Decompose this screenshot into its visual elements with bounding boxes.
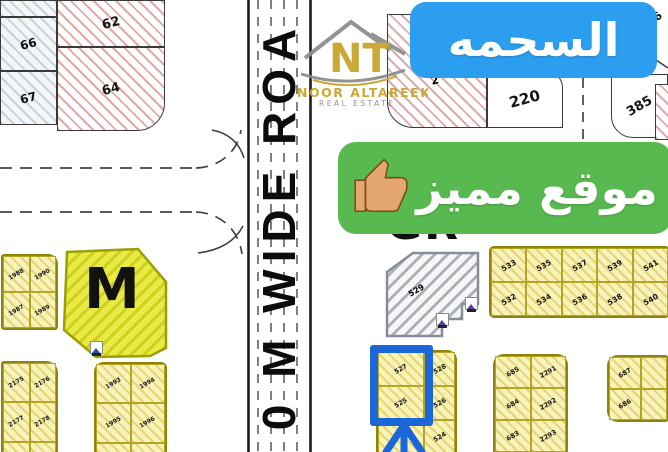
plot-row: 6852291 xyxy=(495,356,566,388)
plot-cell: 539 xyxy=(597,248,632,282)
plot-sliver xyxy=(0,0,57,17)
highlight-rectangle xyxy=(370,345,433,426)
plot-cell xyxy=(3,442,30,452)
plot-number: 541 xyxy=(641,257,659,273)
plot-row xyxy=(3,442,56,452)
plot-row: 19871989 xyxy=(3,292,56,328)
plot-number: 687 xyxy=(617,366,633,380)
plot-corner-curves xyxy=(198,130,244,253)
plot-cell: 2177 xyxy=(3,402,30,441)
plot-number: 2178 xyxy=(34,415,52,429)
plot-edge-hatched xyxy=(655,84,668,140)
plot-67: 67 xyxy=(0,71,57,125)
plot-cell: 1988 xyxy=(3,256,30,292)
plot-row: 6832293 xyxy=(495,420,566,452)
plot-row: 19931994 xyxy=(96,364,165,403)
plot-cell: 1995 xyxy=(96,403,131,442)
plot-cell: 1994 xyxy=(131,364,166,403)
plot-block-530s: 533535537539541532534536538540 xyxy=(489,246,668,318)
plot-number: 535 xyxy=(535,257,553,273)
side-road-markings xyxy=(0,130,242,254)
plot-number: 1988 xyxy=(7,267,25,281)
plot-row: 687 xyxy=(609,357,667,389)
plot-number: 1993 xyxy=(104,376,122,390)
plot-cell xyxy=(131,443,166,452)
plot-row: 532534536538540 xyxy=(491,282,668,316)
plot-cell: 2292 xyxy=(531,388,567,420)
plot-cell: 534 xyxy=(526,282,561,316)
plot-cell: 2175 xyxy=(3,363,30,402)
plot-cell xyxy=(30,442,57,452)
plot-number: 538 xyxy=(606,291,624,307)
plot-number: 1994 xyxy=(139,376,157,390)
plot-number: 2175 xyxy=(7,375,25,389)
plot-number: 2292 xyxy=(538,396,558,412)
plot-number: 685 xyxy=(505,365,521,379)
plot-block-687: 687686 xyxy=(607,355,668,422)
transformer-icon xyxy=(436,313,449,326)
plot-number: 220 xyxy=(508,86,543,111)
plot-block-1990s: 1993199419951996 xyxy=(94,362,167,452)
plot-cell: 1993 xyxy=(96,364,131,403)
plot-number: 64 xyxy=(100,79,121,98)
plot-number: 66 xyxy=(19,35,39,53)
plot-block-1980s: 1988199019871989 xyxy=(1,254,58,330)
plot-cell: 536 xyxy=(562,282,597,316)
plot-cell: 1987 xyxy=(3,292,30,328)
plot-cell xyxy=(641,389,667,421)
plot-number: 537 xyxy=(570,257,588,273)
plot-220: 220 xyxy=(487,70,563,128)
plot-cell: 687 xyxy=(609,357,641,389)
plot-number: 2177 xyxy=(7,415,25,429)
promo-banner: موقع مميز xyxy=(338,142,668,234)
plot-number: 1989 xyxy=(34,303,52,317)
plot-66: 66 xyxy=(0,17,57,71)
plot-block-2170s: 2175217621772178 xyxy=(1,361,58,452)
plot-cell: 537 xyxy=(562,248,597,282)
plot-row: 686 xyxy=(609,389,667,421)
plot-number: 1990 xyxy=(34,267,52,281)
plot-cell: 1990 xyxy=(30,256,57,292)
plot-number: 528 xyxy=(432,362,448,376)
company-name: NOOR ALTAREEK xyxy=(297,85,428,100)
plot-cell: 541 xyxy=(633,248,668,282)
plot-cell: 2176 xyxy=(30,363,57,402)
plot-cell: 533 xyxy=(491,248,526,282)
plot-row: 21772178 xyxy=(3,402,56,441)
plot-number: 1987 xyxy=(7,303,25,317)
plot-number: 385 xyxy=(624,93,655,120)
plot-number: 536 xyxy=(570,291,588,307)
plot-cell: 684 xyxy=(495,388,531,420)
plot-number: 67 xyxy=(19,89,39,107)
plot-cell: 1989 xyxy=(30,292,57,328)
plot-number: 534 xyxy=(535,291,553,307)
plot-number: 683 xyxy=(505,429,521,443)
plot-row: 19951996 xyxy=(96,403,165,442)
plot-cell: 1996 xyxy=(131,403,166,442)
plot-gray-reserve xyxy=(387,253,478,336)
plot-number: 1996 xyxy=(139,416,157,430)
plot-number: 62 xyxy=(100,14,121,33)
utility-icon xyxy=(90,341,103,354)
plot-number: 524 xyxy=(432,430,448,444)
plot-cell: 2178 xyxy=(30,402,57,441)
logo-monogram: NT xyxy=(329,36,390,82)
plot-number: 533 xyxy=(500,257,518,273)
plot-cell: 538 xyxy=(597,282,632,316)
plot-number: 539 xyxy=(606,257,624,273)
plot-cell: 535 xyxy=(526,248,561,282)
plot-62: 62 xyxy=(57,0,165,47)
transformer-icon xyxy=(465,297,478,310)
plot-cell: 2293 xyxy=(531,420,567,452)
plot-cell: 686 xyxy=(609,389,641,421)
mosque-label: M xyxy=(84,262,140,318)
plot-row: 6842292 xyxy=(495,388,566,420)
promo-text: موقع مميز xyxy=(416,165,668,211)
plot-number: 684 xyxy=(505,397,521,411)
up-arrow-icon xyxy=(381,421,427,452)
plot-cell xyxy=(641,357,667,389)
plot-cell xyxy=(96,443,131,452)
plot-number: 526 xyxy=(432,396,448,410)
plot-row: 21752176 xyxy=(3,363,56,402)
plot-cell: 683 xyxy=(495,420,531,452)
plot-row: 533535537539541 xyxy=(491,248,668,282)
plot-64: 64 xyxy=(57,47,165,131)
plot-block-680s: 685229168422926832293 xyxy=(493,354,568,452)
plot-cell: 2291 xyxy=(531,356,567,388)
plot-row: 19881990 xyxy=(3,256,56,292)
plot-cell: 685 xyxy=(495,356,531,388)
plot-number: 540 xyxy=(641,291,659,307)
plot-cell: 532 xyxy=(491,282,526,316)
plot-number: 2293 xyxy=(538,428,558,444)
plot-number: 1995 xyxy=(104,416,122,430)
thumbs-up-icon xyxy=(350,157,412,219)
map-canvas: 66 67 62 64 2 220 385 6 5335355375395415… xyxy=(0,0,668,452)
plot-number: 2291 xyxy=(538,364,558,380)
area-name-text: السحمه xyxy=(448,17,620,63)
plot-number: 2176 xyxy=(34,375,52,389)
plot-number: 532 xyxy=(500,291,518,307)
company-watermark: NT NOOR ALTAREEK REAL ESTATE xyxy=(293,10,428,106)
plot-row xyxy=(96,443,165,452)
company-tagline: REAL ESTATE xyxy=(319,99,396,106)
plot-cell: 540 xyxy=(633,282,668,316)
area-name-banner: السحمه xyxy=(410,2,657,78)
plot-number: 686 xyxy=(617,397,633,411)
